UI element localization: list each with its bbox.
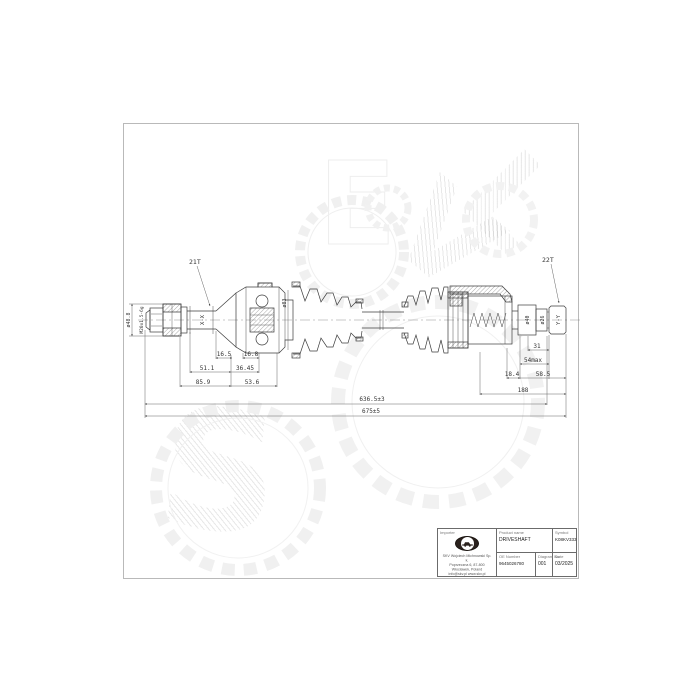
diagram-no-label: Diagram No [536, 553, 552, 559]
dim-total-675: 675±5 [362, 408, 380, 415]
dim-53-6: 53.6 [245, 379, 260, 386]
title-block: Importer SKV Wojciech Michnowski Sp. k. … [437, 528, 577, 577]
importer-address-line2: Poprzeczna 6, 87-800 Włocławek, Poland [441, 562, 493, 571]
section-x-label: X-X [200, 314, 206, 325]
importer-cell: Importer SKV Wojciech Michnowski Sp. k. … [438, 529, 497, 576]
importer-address-line3: info@skv.pl www.skv.pl [441, 571, 493, 576]
left-cv-joint [216, 283, 293, 353]
driveshaft-drawing: 21T 22T X-X Y-Y ø48.8 M20x1.5-6g ø83 ø40… [0, 0, 700, 700]
dim-16-8: 16.8 [244, 351, 259, 358]
importer-label: Importer [438, 529, 457, 535]
symbol-value: K08KV333 [553, 535, 576, 544]
date-cell: Date 03/2025 [553, 553, 576, 576]
title-block-middle-column: Product name DRIVESHAFT OE Number 964502… [497, 529, 553, 576]
dim-58-5: 58.5 [536, 371, 551, 378]
dim-188: 188 [518, 387, 529, 394]
diagram-no-value: 001 [536, 559, 552, 569]
dim-16-5: 16.5 [217, 351, 232, 358]
symbol-cell: Symbol K08KV333 [553, 529, 576, 553]
brand-logo [455, 536, 479, 551]
importer-address: SKV Wojciech Michnowski Sp. k. Poprzeczn… [441, 553, 493, 576]
diagram-no-cell: Diagram No 001 [536, 553, 552, 576]
drawing-page: S E V L [0, 0, 700, 700]
dim-total-636: 636.5±3 [359, 396, 385, 403]
dim-31: 31 [533, 343, 541, 350]
shaft-dia40-label: ø40 [525, 315, 531, 324]
importer-address-line1: SKV Wojciech Michnowski Sp. k. [441, 553, 493, 562]
product-name-cell: Product name DRIVESHAFT [497, 529, 552, 553]
date-value: 03/2025 [553, 559, 576, 569]
hub-diameter-label: ø48.8 [126, 312, 132, 327]
spline-count-left-label: 21T [189, 258, 201, 266]
dim-85-9: 85.9 [196, 379, 211, 386]
oe-number-value: 9645026780 [497, 559, 535, 568]
section-y-label: Y-Y [556, 314, 562, 325]
oe-number-cell: OE Number 9645026780 [497, 553, 536, 576]
product-name-value: DRIVESHAFT [497, 535, 552, 545]
watermark-gears [156, 186, 538, 570]
dim-54max: 54max [524, 357, 542, 364]
brand-logo-car-icon [462, 540, 473, 547]
boot-diameter-label: ø83 [282, 298, 288, 307]
shaft-dia26-label: ø26 [540, 315, 546, 324]
thread-spec-label: M20x1.5-6g [139, 306, 145, 333]
dim-18-4: 18.4 [505, 371, 520, 378]
dim-51-1: 51.1 [200, 365, 215, 372]
spline-count-right-label: 22T [542, 256, 554, 264]
title-block-right-column: Symbol K08KV333 Date 03/2025 [553, 529, 576, 576]
dim-36-45: 36.45 [236, 365, 254, 372]
